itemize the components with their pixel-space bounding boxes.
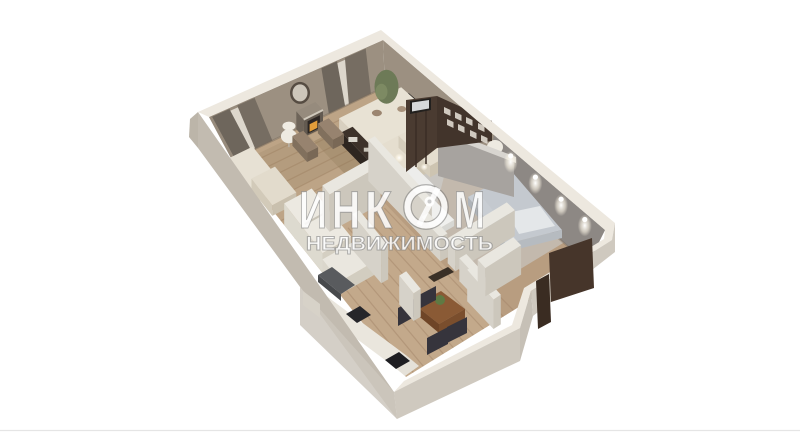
svg-text:Н: Н: [332, 181, 360, 240]
svg-text:И: И: [299, 181, 327, 240]
svg-text:М: М: [454, 181, 485, 240]
svg-text:НЕДВИЖИМОСТЬ: НЕДВИЖИМОСТЬ: [306, 234, 493, 255]
svg-text:К: К: [365, 181, 393, 240]
